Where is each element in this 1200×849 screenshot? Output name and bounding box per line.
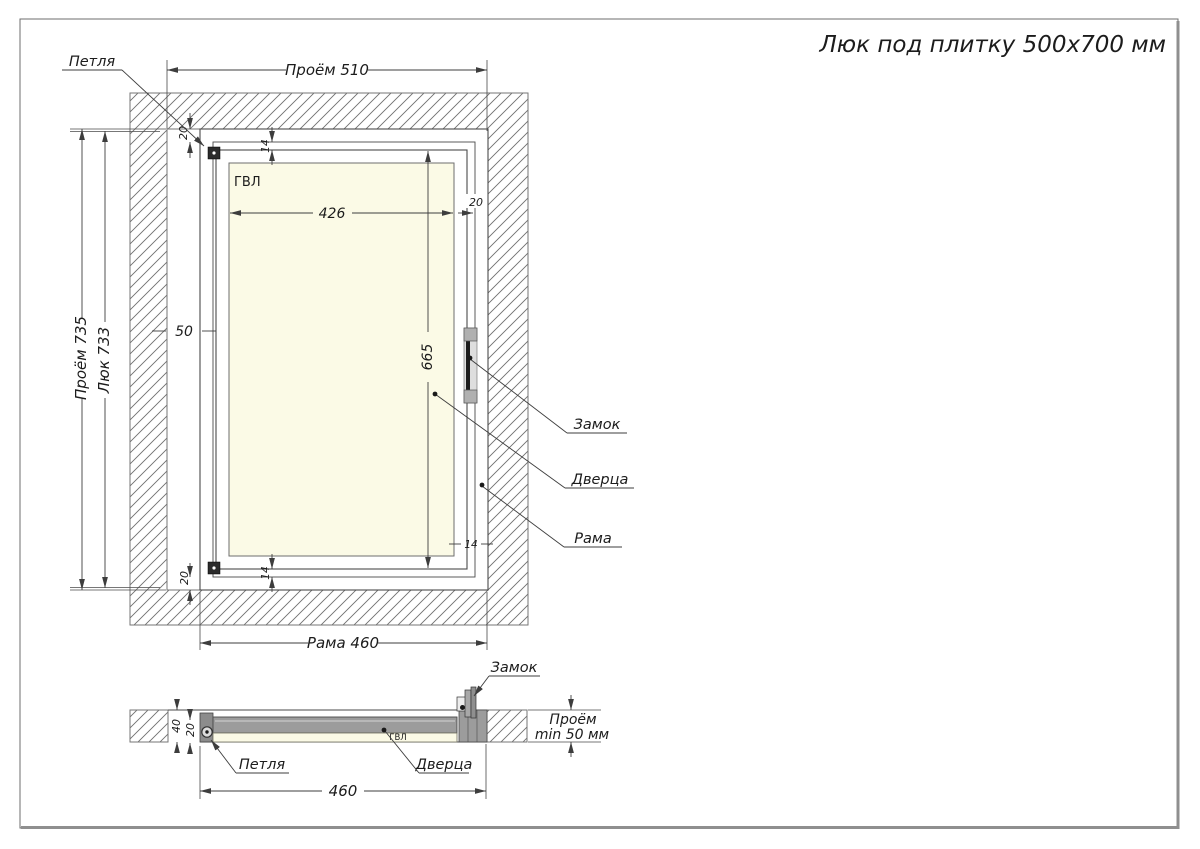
- panel-material-label: ГВЛ: [234, 175, 261, 190]
- drawing-canvas: Люк под плитку 500x700 мм ГВЛ: [0, 0, 1200, 849]
- section-hinge-label: Петля: [239, 757, 286, 773]
- dim-frame-width: Рама 460: [307, 634, 379, 652]
- door-leader-dot: [433, 392, 438, 397]
- drawing-title: Люк под плитку 500x700 мм: [818, 32, 1166, 58]
- dim-profile-right: 20: [469, 196, 483, 209]
- door-bar-section: [213, 717, 457, 733]
- gvl-strip-section: [213, 733, 457, 742]
- section-hinge-icon: [202, 727, 212, 737]
- dim-profile-top: 20: [177, 126, 190, 140]
- dim-hinge-gap: 50: [175, 324, 193, 340]
- dim-opening-width: Проём 510: [285, 61, 369, 79]
- dim-gap-top: 14: [260, 139, 272, 152]
- section-door-leader-dot: [382, 728, 387, 733]
- door-label: Дверца: [571, 472, 629, 488]
- section-door-label: Дверца: [415, 757, 473, 773]
- frame-label: Рама: [574, 531, 611, 547]
- dim-depth-door: 20: [184, 723, 197, 737]
- lock-icon: [464, 328, 477, 403]
- lock-leader-dot: [468, 356, 473, 361]
- lock-label: Замок: [574, 417, 621, 433]
- dim-opening-depth-line1: Проём: [549, 712, 597, 728]
- dim-hatch-height: Люк 733: [95, 327, 113, 394]
- frame-leader-dot: [480, 483, 485, 488]
- dim-panel-width: 426: [319, 206, 346, 222]
- section-panel-label: ГВЛ: [389, 733, 406, 743]
- dim-opening-height: Проём 735: [72, 316, 90, 400]
- wall-right-section: [487, 710, 527, 742]
- hinge-top-pin: [212, 151, 215, 154]
- dim-depth-total: 40: [170, 719, 183, 733]
- dim-profile-bottom: 20: [178, 571, 191, 585]
- section-lock-label: Замок: [491, 660, 538, 676]
- wall-left-section: [130, 710, 168, 742]
- dim-door-height: 665: [420, 344, 436, 371]
- dim-section-width: 460: [329, 782, 358, 800]
- hinge-label: Петля: [69, 54, 116, 70]
- dim-gap-right: 14: [464, 539, 477, 551]
- hinge-bottom-pin: [212, 566, 215, 569]
- dim-opening-depth-line2: min 50 мм: [535, 727, 610, 743]
- dim-gap-bottom: 14: [260, 566, 272, 579]
